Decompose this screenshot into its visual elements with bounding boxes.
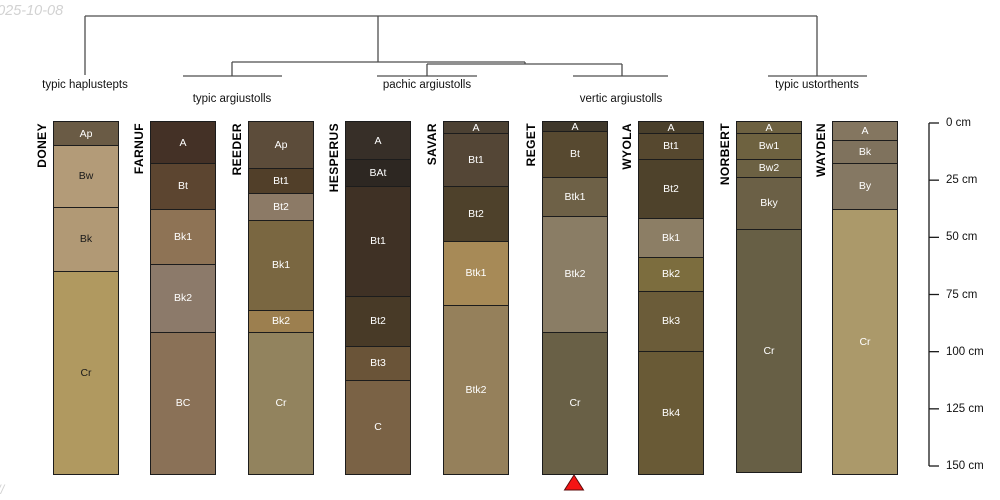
soil-profile-column: ABkByCr: [832, 121, 898, 475]
taxon-label: typic ustorthents: [737, 79, 897, 91]
horizon-rect: [833, 209, 897, 474]
horizon-rect: [249, 310, 313, 332]
horizon-rect: [151, 163, 215, 209]
horizon-rect: [639, 122, 703, 133]
corner-watermark: //: [0, 482, 4, 497]
horizon-rect: [346, 186, 410, 296]
horizon-rect: [151, 122, 215, 163]
depth-tick-label: 100 cm: [946, 345, 984, 359]
horizon-rect: [151, 332, 215, 474]
soil-profile-figure: 2025-10-08 // typic haplusteptstypic arg…: [0, 0, 1000, 500]
horizon-rect: [639, 291, 703, 351]
profile-id-label: REEDER: [231, 123, 244, 175]
soil-profile-column: ABt1Bt2Bk1Bk2Bk3Bk4: [638, 121, 704, 475]
profile-id-label: SAVAR: [426, 123, 439, 165]
horizon-rect: [543, 216, 607, 332]
horizon-rect: [346, 122, 410, 159]
soil-profile-column: ApBwBkCr: [53, 121, 119, 475]
horizon-rect: [543, 131, 607, 177]
horizon-rect: [54, 122, 118, 145]
profile-id-label: REGET: [525, 123, 538, 166]
horizon-rect: [737, 177, 801, 229]
horizon-rect: [639, 133, 703, 159]
profile-id-label: WYOLA: [621, 123, 634, 170]
horizon-rect: [444, 133, 508, 186]
horizon-rect: [444, 305, 508, 474]
horizon-rect: [543, 122, 607, 131]
date-watermark: 2025-10-08: [0, 3, 63, 19]
horizon-rect: [54, 271, 118, 474]
depth-tick-label: 0 cm: [946, 116, 971, 130]
horizon-rect: [444, 186, 508, 241]
horizon-rect: [639, 218, 703, 257]
horizon-rect: [54, 145, 118, 207]
horizon-rect: [444, 122, 508, 133]
soil-profile-column: ABw1Bw2BkyCr: [736, 121, 802, 473]
horizon-rect: [543, 177, 607, 216]
profile-id-label: DONEY: [36, 123, 49, 168]
horizon-rect: [346, 296, 410, 346]
horizon-rect: [151, 264, 215, 332]
profile-id-label: NORBERT: [719, 123, 732, 185]
horizon-rect: [346, 159, 410, 186]
taxon-label: vertic argiustolls: [541, 93, 701, 105]
horizon-rect: [346, 346, 410, 380]
soil-profile-column: ApBt1Bt2Bk1Bk2Cr: [248, 121, 314, 475]
taxon-label: typic argiustolls: [152, 93, 312, 105]
soil-profile-column: ABtBk1Bk2BC: [150, 121, 216, 475]
depth-tick-label: 150 cm: [946, 459, 984, 473]
horizon-rect: [249, 168, 313, 193]
horizon-rect: [639, 159, 703, 218]
depth-tick-label: 125 cm: [946, 402, 984, 416]
horizon-rect: [249, 193, 313, 220]
horizon-rect: [346, 380, 410, 474]
horizon-rect: [639, 351, 703, 474]
horizon-rect: [249, 122, 313, 168]
horizon-rect: [249, 220, 313, 310]
horizon-rect: [639, 257, 703, 291]
taxon-label: typic haplustepts: [5, 79, 165, 91]
depth-tick-label: 50 cm: [946, 230, 977, 244]
soil-profile-column: ABt1Bt2Btk1Btk2: [443, 121, 509, 475]
taxon-label: pachic argiustolls: [347, 79, 507, 91]
soil-profile-column: ABtBtk1Btk2Cr: [542, 121, 608, 475]
horizon-rect: [737, 229, 801, 472]
horizon-rect: [833, 140, 897, 163]
horizon-rect: [737, 122, 801, 133]
horizon-rect: [54, 207, 118, 271]
depth-tick-label: 25 cm: [946, 173, 977, 187]
horizon-rect: [833, 122, 897, 140]
horizon-rect: [444, 241, 508, 305]
depth-tick-label: 75 cm: [946, 288, 977, 302]
profile-id-label: WAYDEN: [815, 123, 828, 177]
horizon-rect: [737, 159, 801, 177]
marker-triangle-icon: [565, 475, 584, 490]
horizon-rect: [833, 163, 897, 209]
profile-id-label: HESPERUS: [328, 123, 341, 192]
horizon-rect: [249, 332, 313, 474]
soil-profile-column: ABAtBt1Bt2Bt3C: [345, 121, 411, 475]
horizon-rect: [151, 209, 215, 264]
horizon-rect: [543, 332, 607, 474]
horizon-rect: [737, 133, 801, 159]
profile-id-label: FARNUF: [133, 123, 146, 174]
